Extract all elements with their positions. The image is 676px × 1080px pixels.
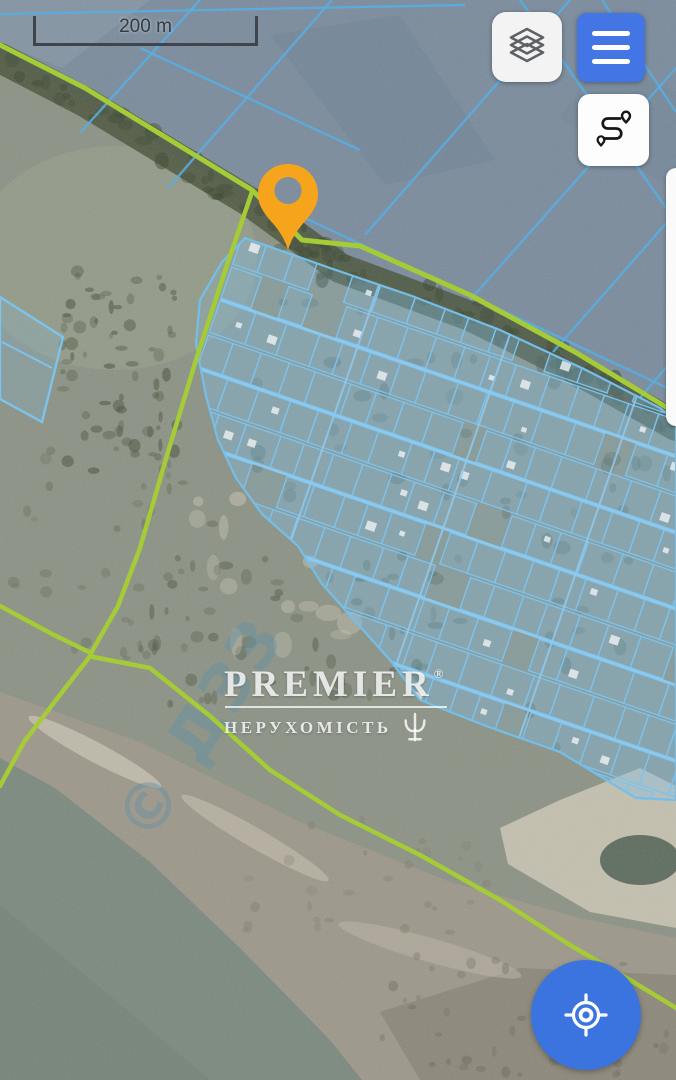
locate-fab-button[interactable] [531,960,641,1070]
brand-divider [225,706,447,708]
brand-watermark: PREMIER® НЕРУХОМІСТЬ [224,666,460,745]
locate-icon [558,987,614,1043]
route-icon [592,108,636,152]
scale-bar: 200 m [33,16,258,46]
brand-name: PREMIER® [224,666,460,703]
map-pin-icon [258,164,318,250]
trident-logo-icon [400,711,430,745]
menu-button[interactable] [577,13,645,82]
map-marker-pin[interactable] [250,159,327,254]
scale-bar-label: 200 m [119,16,172,39]
map-stage: © ДЗЗ PREMIER® НЕРУХОМІСТЬ 200 m [0,0,676,1080]
right-edge-panel[interactable] [666,168,676,426]
route-button[interactable] [578,94,649,166]
hamburger-icon [592,31,630,64]
layers-button[interactable] [492,12,562,82]
registered-mark: ® [434,666,444,681]
satellite-map-canvas[interactable]: © ДЗЗ [0,0,676,1080]
brand-subtitle: НЕРУХОМІСТЬ [224,718,392,738]
layers-icon [504,24,550,70]
